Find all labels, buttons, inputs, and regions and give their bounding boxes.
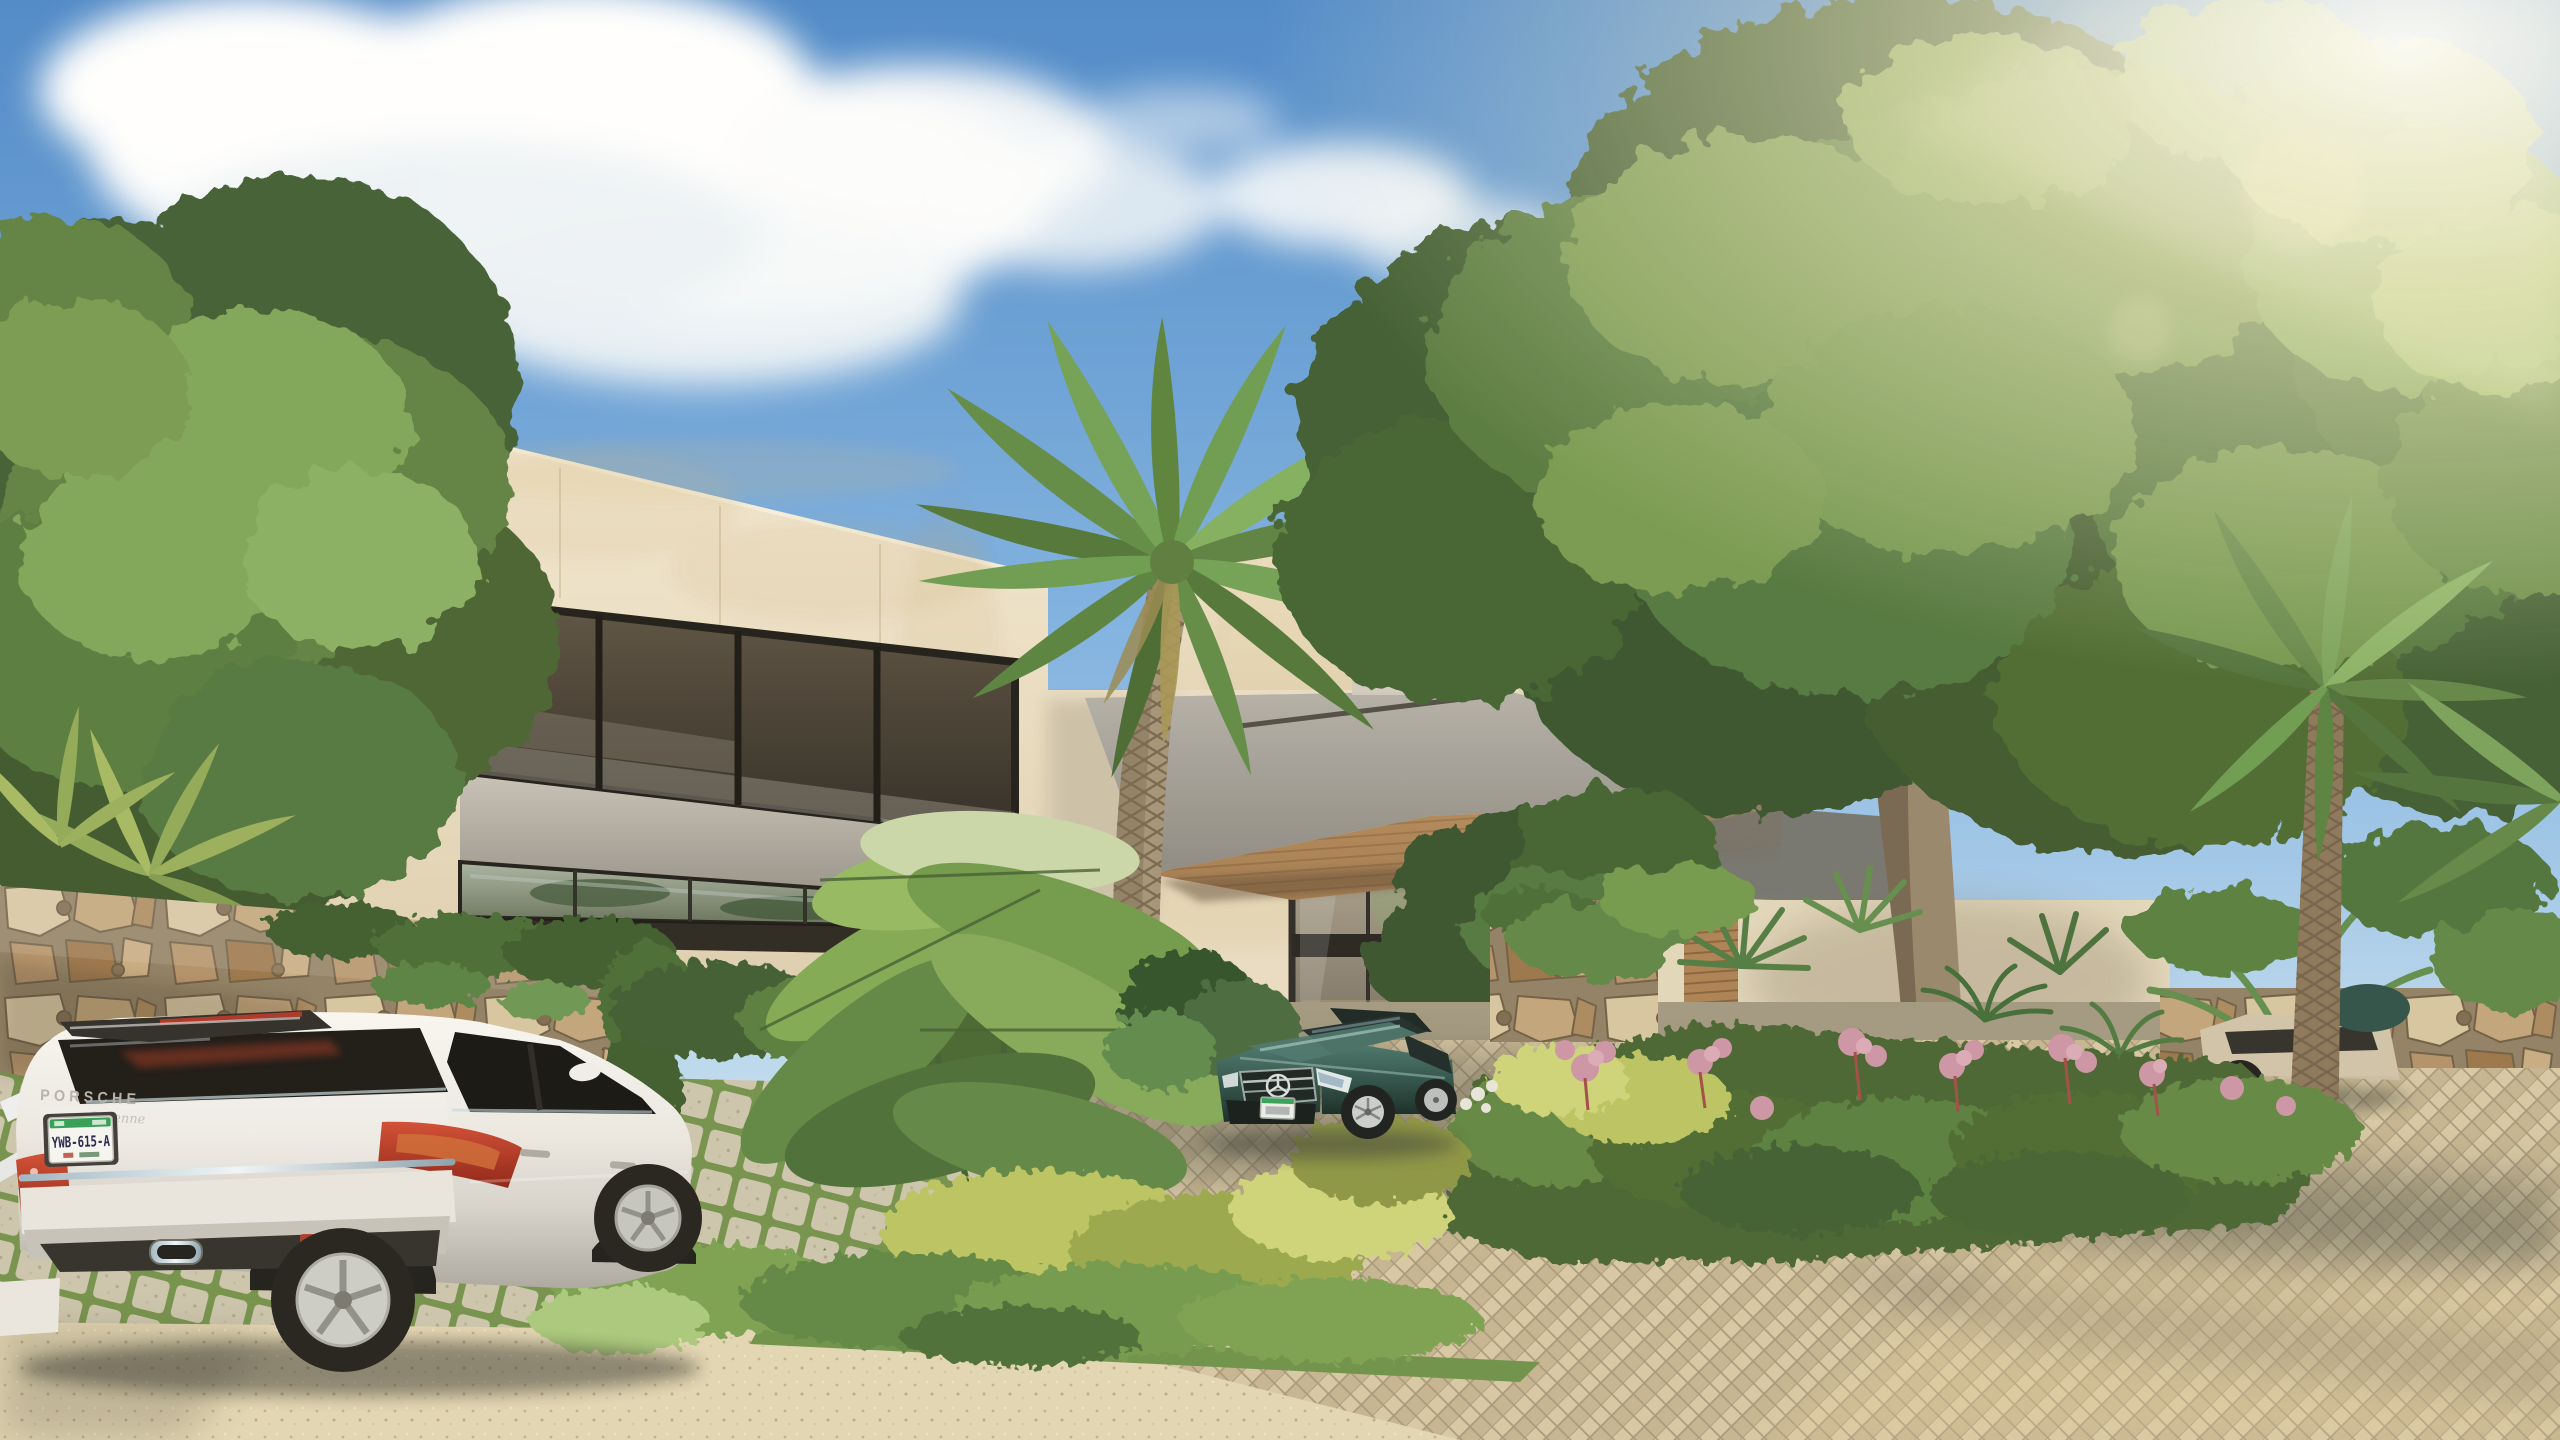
- scene-canvas: PORSCHE Cayenne YWB-615-A: [0, 0, 2560, 1440]
- architectural-rendering: PORSCHE Cayenne YWB-615-A: [0, 0, 2560, 1440]
- warm-tint: [0, 0, 2560, 1440]
- sun-glare: [0, 0, 2560, 1440]
